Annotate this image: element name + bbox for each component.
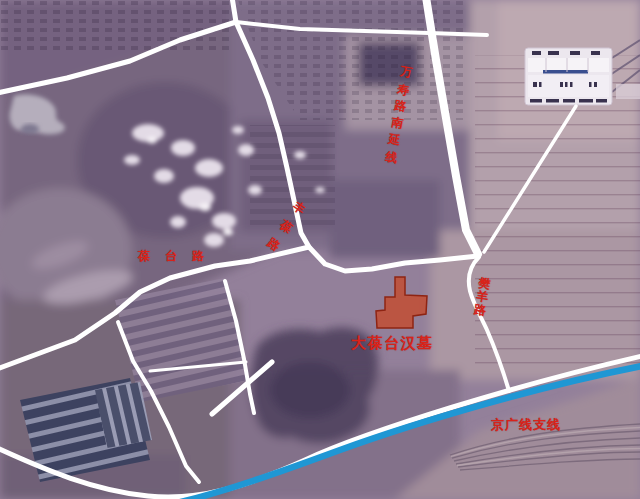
building-blue-stripe [543,70,588,74]
satellite-map-figure: 万寿路南延线 丰葆路 樊羊路 葆台路 大葆台汉墓 京广线支线 [0,0,640,499]
label-baotai-road: 葆台路 [138,250,219,262]
label-dabaotai-han-tomb: 大葆台汉墓 [351,336,434,351]
label-jingguang-branch-line: 京广线支线 [491,418,561,431]
